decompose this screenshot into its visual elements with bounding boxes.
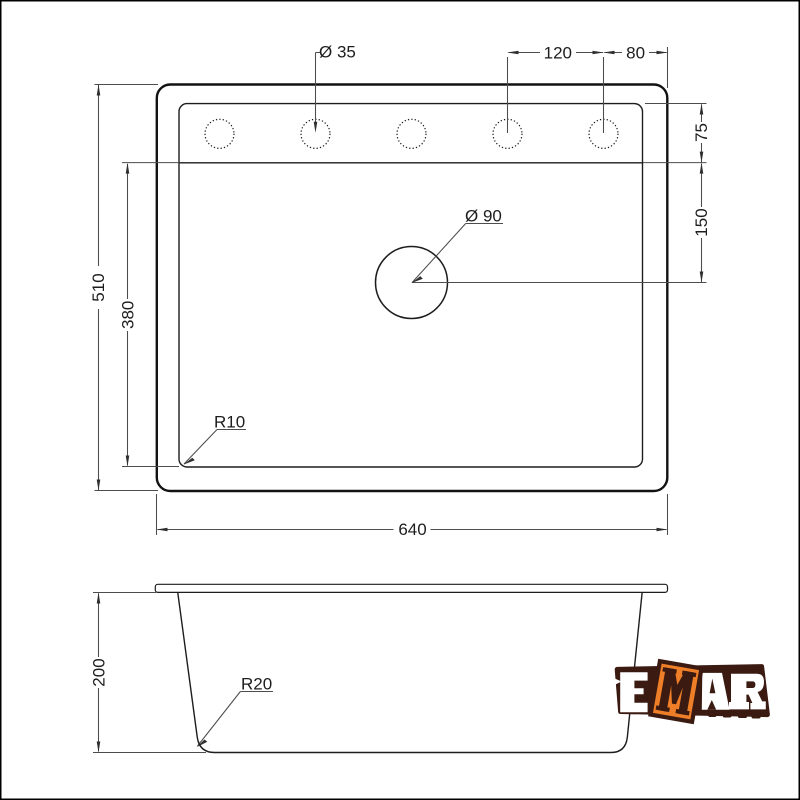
svg-text:R10: R10 xyxy=(214,413,245,432)
svg-text:510: 510 xyxy=(89,273,108,301)
svg-text:R20: R20 xyxy=(241,674,272,693)
svg-text:640: 640 xyxy=(398,520,426,539)
svg-text:150: 150 xyxy=(692,208,711,236)
svg-text:Ø 35: Ø 35 xyxy=(319,43,356,62)
svg-text:Ø 90: Ø 90 xyxy=(465,207,502,226)
svg-text:120: 120 xyxy=(544,43,572,62)
svg-text:80: 80 xyxy=(626,43,645,62)
svg-text:75: 75 xyxy=(692,123,711,142)
svg-text:200: 200 xyxy=(90,658,109,686)
svg-text:380: 380 xyxy=(118,301,137,329)
